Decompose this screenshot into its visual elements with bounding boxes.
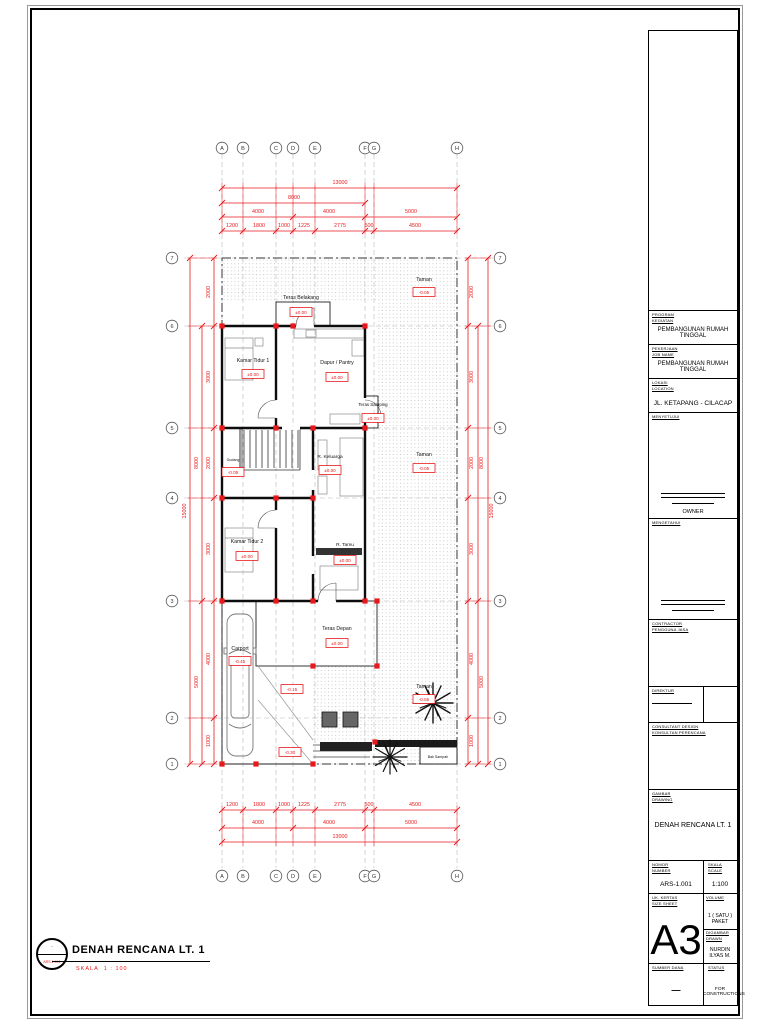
grid-bubble-label: G bbox=[372, 146, 376, 152]
dim-label: 2775 bbox=[334, 223, 346, 229]
grid-bubble-label: D bbox=[291, 874, 295, 880]
volume-cell: VOLUME 1 ( SATU ) PAKET bbox=[703, 894, 737, 930]
column-marker bbox=[362, 598, 367, 603]
room-label: Teras Depan bbox=[322, 626, 352, 632]
car-top-view-icon bbox=[224, 614, 256, 756]
dim-label: 2000 bbox=[206, 457, 212, 469]
dim-label: 1200 bbox=[226, 802, 238, 808]
dim-label: 1200 bbox=[226, 223, 238, 229]
level-value: -0.05 bbox=[419, 466, 430, 471]
dim-label: 2000 bbox=[469, 457, 475, 469]
dim-label: 1000 bbox=[469, 735, 475, 747]
dim-label: 500 bbox=[365, 223, 374, 229]
kertas-volume-row: UK. KERTASSIZE SHEET A3 VOLUME 1 ( SATU … bbox=[648, 893, 738, 964]
dim-label: 1800 bbox=[253, 223, 265, 229]
dim-label: 13000 bbox=[333, 180, 348, 186]
column-marker bbox=[273, 495, 278, 500]
direktur-section: DIREKTUR bbox=[648, 686, 738, 723]
dim-label: 2775 bbox=[334, 802, 346, 808]
program-label: PROGRAMKEGIATAN bbox=[649, 311, 737, 324]
column-marker bbox=[310, 425, 315, 430]
lokasi-value: JL. KETAPANG - CILACAP bbox=[649, 400, 737, 407]
grid-bubble-label: D bbox=[291, 146, 295, 152]
grid-bubble-label: B bbox=[241, 146, 245, 152]
grid-bubble-label: B bbox=[241, 874, 245, 880]
drawing-title: DENAH RENCANA LT. 1 bbox=[649, 822, 737, 829]
dim-label: 4000 bbox=[252, 820, 264, 826]
room-label: Kamar Tidur 2 bbox=[231, 539, 264, 545]
owner-value: OWNER bbox=[649, 509, 737, 515]
dim-label: 4000 bbox=[323, 209, 335, 215]
footer-drawing-title: DENAH RENCANA LT. 1 bbox=[72, 944, 205, 956]
column-marker bbox=[219, 761, 224, 766]
grid-bubble-label: G bbox=[372, 874, 376, 880]
room-label: Dapur / Pantry bbox=[320, 360, 354, 366]
grid-bubble-label: 6 bbox=[170, 324, 173, 330]
scale-value: 1:100 bbox=[703, 881, 737, 888]
room-label: R. Keluarga bbox=[317, 454, 343, 460]
grid-bubble-label: A bbox=[220, 874, 224, 880]
drawing-sheet: { "sheet": { "accent_red": "#e8191c", "p… bbox=[0, 0, 768, 1024]
grid-bubble-label: 1 bbox=[498, 762, 501, 768]
drawing-number: ARS-1.001 bbox=[649, 881, 703, 888]
gambar-label: GAMBARDRAWING bbox=[649, 790, 737, 803]
level-value: ±0.00 bbox=[331, 641, 343, 646]
dim-label: 5000 bbox=[405, 209, 417, 215]
drawn-by: NURDIN ILYAS M. bbox=[703, 947, 737, 959]
grid-bubble-label: 3 bbox=[498, 599, 501, 605]
drawing-ref-symbol: - ARS-1.001 bbox=[36, 938, 68, 970]
gambar-section: GAMBARDRAWING DENAH RENCANA LT. 1 bbox=[648, 789, 738, 861]
nomor-label: NOMORNUMBER bbox=[649, 861, 702, 874]
level-value: ±0.00 bbox=[247, 372, 259, 377]
room-label: Taman bbox=[416, 684, 432, 690]
dim-label: 3000 bbox=[469, 543, 475, 555]
grid-bubble-label: 4 bbox=[498, 496, 501, 502]
column-marker bbox=[374, 598, 379, 603]
dana-status-row: SUMBER DANA — STATUS FOR CONSTRUCTIONS bbox=[648, 963, 738, 1006]
column-marker bbox=[290, 323, 295, 328]
column-marker bbox=[273, 425, 278, 430]
dim-label: 500 bbox=[365, 802, 374, 808]
tv-console bbox=[316, 548, 362, 555]
column-marker bbox=[219, 323, 224, 328]
dim-label: 1225 bbox=[298, 223, 310, 229]
dim-label: 1225 bbox=[298, 802, 310, 808]
room-label: Carport bbox=[231, 646, 249, 652]
dim-label: 4000 bbox=[469, 653, 475, 665]
column-marker bbox=[310, 495, 315, 500]
column-marker bbox=[310, 663, 315, 668]
column-marker bbox=[219, 495, 224, 500]
level-value: -0.05 bbox=[228, 470, 239, 475]
level-value: -0.45 bbox=[235, 659, 246, 664]
dim-label: 1000 bbox=[278, 802, 290, 808]
stairs bbox=[242, 428, 300, 470]
menyetujui-label: MENYETUJUI bbox=[649, 413, 737, 420]
column-marker bbox=[273, 598, 278, 603]
grid-bubble-label: E bbox=[313, 146, 317, 152]
footer-scale: SKALA 1 : 100 bbox=[76, 966, 128, 972]
dim-label: 5000 bbox=[194, 676, 200, 688]
menyetujui-section: MENYETUJUI OWNER bbox=[648, 412, 738, 519]
lokasi-label: LOKASILOCATION bbox=[649, 379, 737, 392]
level-value: ±0.00 bbox=[331, 375, 343, 380]
level-value: ±0.00 bbox=[241, 554, 253, 559]
pekerjaan-section: PEKERJAANJOB NAME PEMBANGUNAN RUMAH TING… bbox=[648, 344, 738, 379]
dim-label: 8000 bbox=[288, 195, 300, 201]
dim-label: 15000 bbox=[489, 504, 495, 519]
dim-label: 3000 bbox=[469, 371, 475, 383]
dim-label: 4000 bbox=[206, 653, 212, 665]
dim-label: 4000 bbox=[252, 209, 264, 215]
status-value: FOR CONSTRUCTIONS bbox=[703, 987, 737, 997]
status-label: STATUS bbox=[705, 964, 724, 971]
room-label: Bak Sampah bbox=[428, 755, 449, 759]
digambar-cell: DIGAMBARDRAWN NURDIN ILYAS M. bbox=[703, 929, 737, 963]
grid-bubble-label: 5 bbox=[498, 426, 501, 432]
dim-label: 1000 bbox=[206, 735, 212, 747]
volume-value: 1 ( SATU ) PAKET bbox=[703, 913, 737, 925]
grid-bubble-label: C bbox=[274, 874, 278, 880]
level-value: -0.30 bbox=[285, 750, 296, 755]
nomor-skala-row: NOMORNUMBER ARS-1.001 SKALASCALE 1:100 bbox=[648, 860, 738, 894]
grid-bubble-label: 6 bbox=[498, 324, 501, 330]
logo-box bbox=[648, 30, 738, 311]
dim-label: 2000 bbox=[206, 286, 212, 298]
room-label: Teras Samping bbox=[358, 402, 388, 407]
level-value: -0.55 bbox=[419, 697, 430, 702]
dim-label: 13000 bbox=[333, 834, 348, 840]
consultant-section: CONSULTANT DESIGNKONSULTAN PERENCANA bbox=[648, 722, 738, 790]
mengetahui-section: MENGETAHUI bbox=[648, 518, 738, 620]
grid-bubble-label: 2 bbox=[170, 716, 173, 722]
column-marker bbox=[310, 598, 315, 603]
grid-bubble-label: 2 bbox=[498, 716, 501, 722]
grid-bubble-label: H bbox=[455, 146, 459, 152]
dim-label: 4500 bbox=[409, 802, 421, 808]
dim-label: 3000 bbox=[206, 371, 212, 383]
lokasi-section: LOKASILOCATION JL. KETAPANG - CILACAP bbox=[648, 378, 738, 413]
room-label: Gudang bbox=[227, 458, 240, 462]
level-value: ±0.00 bbox=[295, 310, 307, 315]
skala-label: SKALASCALE bbox=[705, 861, 722, 874]
grid-bubble-label: 4 bbox=[170, 496, 173, 502]
grid-bubble-label: C bbox=[274, 146, 278, 152]
dim-label: 4000 bbox=[323, 820, 335, 826]
digambar-label: DIGAMBARDRAWN bbox=[703, 929, 737, 942]
room-label: Teras Belakang bbox=[283, 295, 319, 301]
ref-number: - bbox=[38, 944, 66, 950]
grid-bubble-label: 7 bbox=[170, 256, 173, 262]
column-marker bbox=[310, 761, 315, 766]
pekerjaan-value: PEMBANGUNAN RUMAH TINGGAL bbox=[649, 361, 737, 373]
grid-bubble-label: A bbox=[220, 146, 224, 152]
column-marker bbox=[219, 598, 224, 603]
grid-bubble-label: 5 bbox=[170, 426, 173, 432]
dim-label: 8000 bbox=[194, 457, 200, 469]
grid-bubble-label: 1 bbox=[170, 762, 173, 768]
paper-size: A3 bbox=[649, 919, 703, 961]
grid-bubble-label: H bbox=[455, 874, 459, 880]
dim-label: 15000 bbox=[182, 504, 188, 519]
dim-label: 2000 bbox=[469, 286, 475, 298]
level-value: ±0.00 bbox=[324, 468, 336, 473]
sumber-dana-value: — bbox=[649, 985, 703, 995]
front-fence bbox=[375, 740, 457, 747]
consultant-label: CONSULTANT DESIGNKONSULTAN PERENCANA bbox=[649, 723, 737, 736]
volume-label: VOLUME bbox=[703, 894, 737, 901]
level-value: ±0.00 bbox=[339, 558, 351, 563]
contractor-label: CONTRACTORPENGGUNA JASA bbox=[649, 620, 737, 633]
column-marker bbox=[362, 425, 367, 430]
room-label: Kamar Tidur 1 bbox=[237, 358, 270, 364]
dim-label: 5000 bbox=[479, 676, 485, 688]
room-label: Taman bbox=[416, 452, 432, 458]
column-marker bbox=[372, 739, 377, 744]
dim-label: 1000 bbox=[278, 223, 290, 229]
column-marker bbox=[362, 323, 367, 328]
level-value: -0.05 bbox=[419, 290, 430, 295]
program-value: PEMBANGUNAN RUMAH TINGGAL bbox=[649, 327, 737, 339]
program-section: PROGRAMKEGIATAN PEMBANGUNAN RUMAH TINGGA… bbox=[648, 310, 738, 345]
room-label: Taman bbox=[416, 277, 432, 283]
level-value: ±0.00 bbox=[367, 416, 379, 421]
mengetahui-label: MENGETAHUI bbox=[649, 519, 737, 526]
dim-label: 4500 bbox=[409, 223, 421, 229]
grid-bubble-label: 7 bbox=[498, 256, 501, 262]
column-marker bbox=[374, 663, 379, 668]
dim-label: 1800 bbox=[253, 802, 265, 808]
column-marker bbox=[219, 425, 224, 430]
dim-label: 8000 bbox=[479, 457, 485, 469]
dim-label: 3000 bbox=[206, 543, 212, 555]
column-marker bbox=[253, 761, 258, 766]
grid-bubble-label: E bbox=[313, 874, 317, 880]
dim-label: 5000 bbox=[405, 820, 417, 826]
pekerjaan-label: PEKERJAANJOB NAME bbox=[649, 345, 737, 358]
room-label: R. Tamu bbox=[336, 542, 354, 548]
grid-bubble-label: 3 bbox=[170, 599, 173, 605]
contractor-section: CONTRACTORPENGGUNA JASA bbox=[648, 619, 738, 687]
direktur-label: DIREKTUR bbox=[649, 687, 737, 694]
column-marker bbox=[273, 323, 278, 328]
level-value: -0.15 bbox=[287, 687, 298, 692]
